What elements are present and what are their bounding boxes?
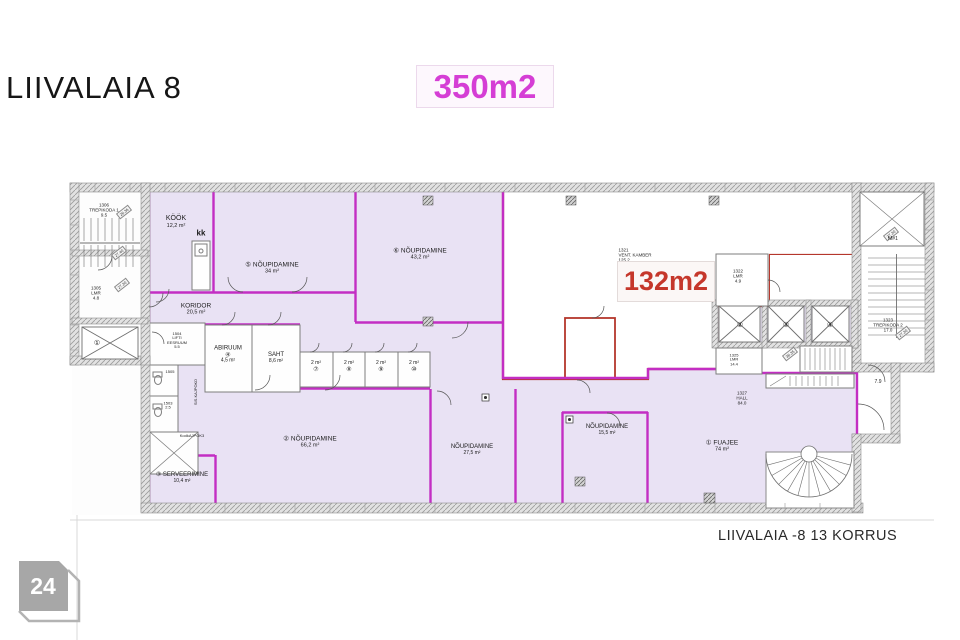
wardrobe-counter <box>766 374 854 388</box>
room-label-saht: SAHT 8,6 m² <box>268 352 284 364</box>
room-label-fuajee: ① FUAJEE 74 m² <box>706 439 739 452</box>
room-label-meeting2: ② NÕUPIDAMINE 66,2 m² <box>283 435 337 448</box>
room-label-meeting5: ⑤ NÕUPIDAMINE 34 m² <box>245 261 299 274</box>
floor-plan-drawing <box>0 0 960 640</box>
highlight-area-badge: 132m2 <box>617 261 715 302</box>
room-label-lifti-eesruum: 1504 LIFTI EESRUUM 5.5 <box>167 332 187 350</box>
small-stair <box>800 346 852 372</box>
label-m1: M#1 <box>888 237 898 243</box>
dim-79: 7.9 <box>875 380 882 386</box>
room-label-hall: 1327 HALL 84.0 <box>736 390 747 405</box>
room-label-wc9: 2 m² ⑨ <box>376 361 386 373</box>
spiral-stair <box>766 446 854 508</box>
room-label-1505: 1505 <box>166 370 175 374</box>
tiny-label-2: KodkAJPOK3 <box>180 434 204 438</box>
room-label-kook: KÖÖK 12,2 m² <box>166 215 186 229</box>
room-label-trepikoda1: 1306 TREPIKODA 1 9.5 <box>89 202 119 217</box>
room-label-meeting6: ⑥ NÕUPIDAMINE 43,2 m² <box>393 247 447 260</box>
room-label-lmr1305: 1305 LMR 4.8 <box>91 285 101 300</box>
room-label-wc10: 2 m² ⑩ <box>409 361 419 373</box>
vent-vestibule <box>565 318 615 378</box>
floor-plan-page: LIIVALAIA 8 350m2 <box>0 0 960 640</box>
elevator-2-number: ② <box>737 322 743 330</box>
room-label-trepikoda2: 1323 TREPIKODA 2 17.0 <box>873 317 903 332</box>
room-label-lmr1322: 1322 LMR 4.9 <box>733 268 743 283</box>
room-label-1503: 1503 2.5 <box>164 402 173 411</box>
room-label-koridor: KORIDOR 20,5 m² <box>181 302 211 315</box>
tiny-label-1: SIS.KAJPOKD <box>194 379 198 405</box>
room-label-abiruum: ABIRUUM ④ 4,5 m² <box>214 345 242 364</box>
plan-footer-label: LIIVALAIA -8 13 KORRUS <box>718 528 897 544</box>
elevator-1-number: ① <box>94 340 100 348</box>
room-label-wc8: 2 m² ⑧ <box>344 361 354 373</box>
room-label-meeting27: NÕUPIDAMINE 27,5 m² <box>451 444 493 456</box>
elevator-4-number: ④ <box>827 322 833 330</box>
room-lmr-1325 <box>716 348 762 374</box>
room-label-wc7: 2 m² ⑦ <box>311 361 321 373</box>
elevator-3-number: ③ <box>783 322 789 330</box>
room-label-serveerimine: ③ SERVEERIMINE 10,4 m² <box>156 472 208 484</box>
room-label-meeting15: NÕUPIDAMINE 15,5 m² <box>586 424 628 436</box>
room-label-lmr1325: 1325 LMR 14.4 <box>730 353 739 366</box>
page-number: 24 <box>24 571 62 601</box>
kitchenette-label: kk <box>197 230 206 239</box>
